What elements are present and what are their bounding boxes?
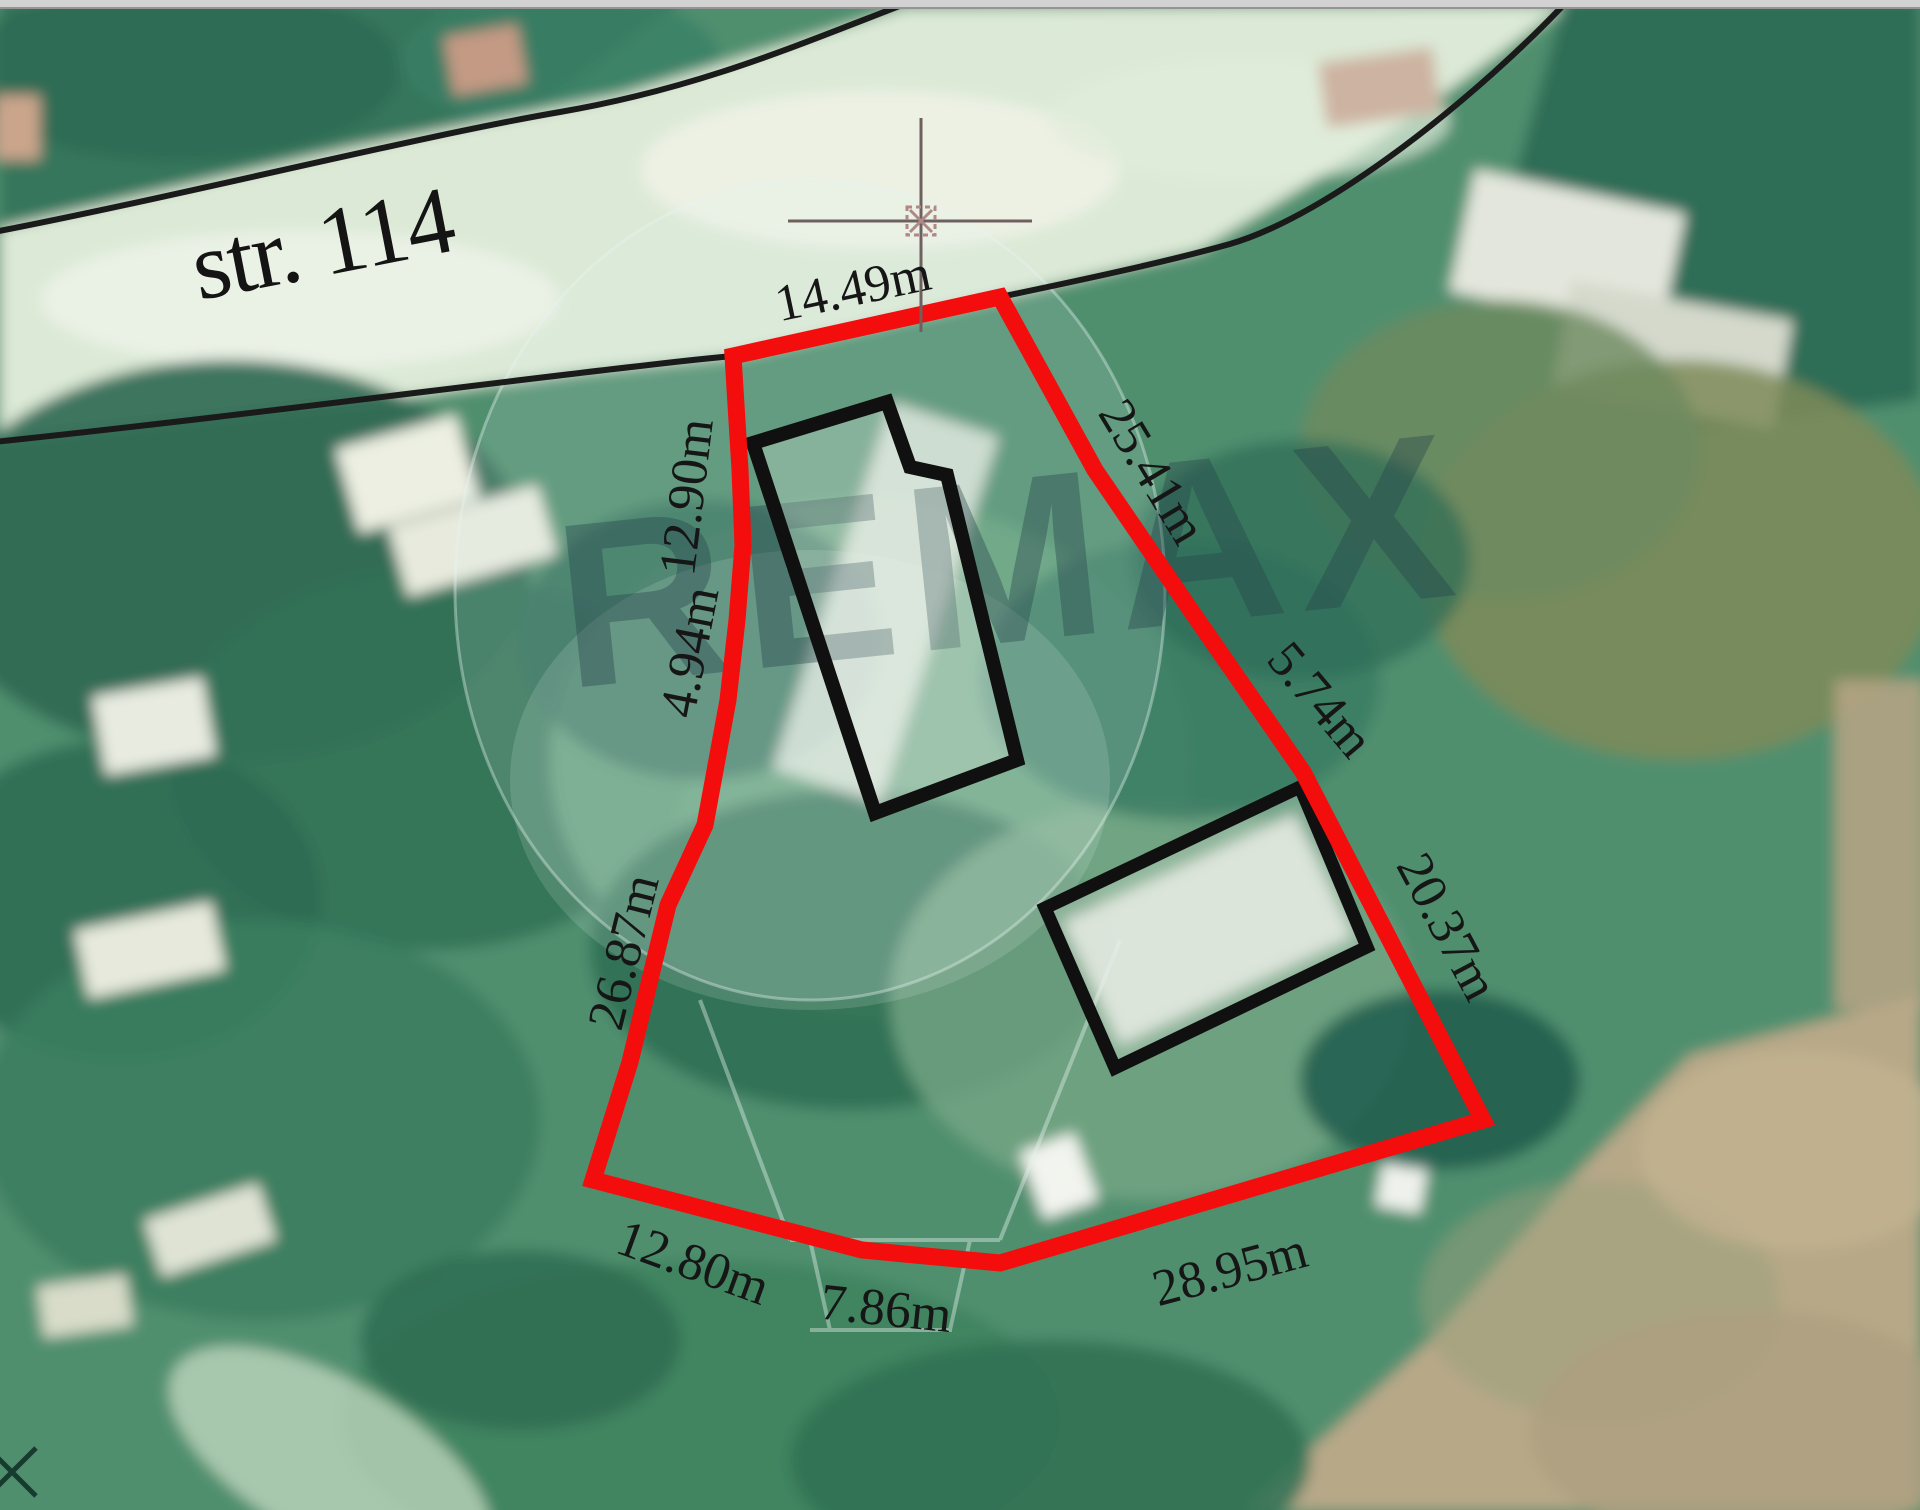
street-name-label: str. 114 bbox=[182, 163, 461, 322]
dimension-label-edge-left-upper: 12.90m bbox=[648, 415, 726, 578]
labels-layer: str. 114 14.49m25.41m5.74m20.37m28.95m7.… bbox=[0, 0, 1920, 1510]
dimension-label-edge-right-lower: 20.37m bbox=[1384, 844, 1510, 1011]
dimension-label-edge-right-mid: 5.74m bbox=[1255, 631, 1385, 770]
dimension-label-edge-left-lower: 26.87m bbox=[576, 868, 671, 1035]
dimension-label-edge-bottom-right: 28.95m bbox=[1146, 1221, 1313, 1319]
cadastral-aerial-map: REMAX str. 114 14.49m25.41m5.74m20.37m28… bbox=[0, 0, 1920, 1510]
dimension-label-edge-top: 14.49m bbox=[770, 244, 936, 334]
dimension-label-edge-right-upper: 25.41m bbox=[1086, 389, 1218, 554]
window-edge-strip bbox=[0, 0, 1920, 9]
dimension-label-edge-bottom-left: 12.80m bbox=[609, 1208, 777, 1317]
dimension-label-edge-bottom-mid: 7.86m bbox=[818, 1273, 955, 1345]
dimension-label-edge-left-mid: 4.94m bbox=[649, 582, 732, 722]
